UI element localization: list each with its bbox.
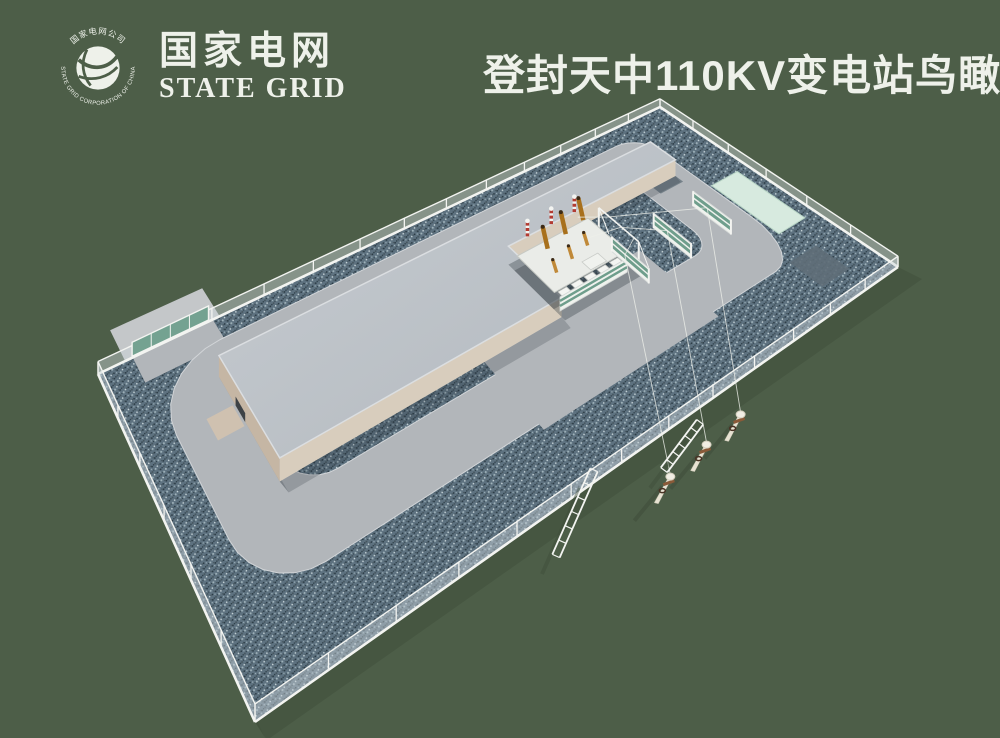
pole-cap	[736, 411, 745, 418]
pole-cap	[702, 441, 711, 448]
substation-poster: 国家电网公司 STATE GRID CORPORATION OF CHINA 国…	[0, 0, 1000, 738]
pole-cap	[666, 473, 675, 480]
substation-3d-rendering	[0, 0, 1000, 738]
